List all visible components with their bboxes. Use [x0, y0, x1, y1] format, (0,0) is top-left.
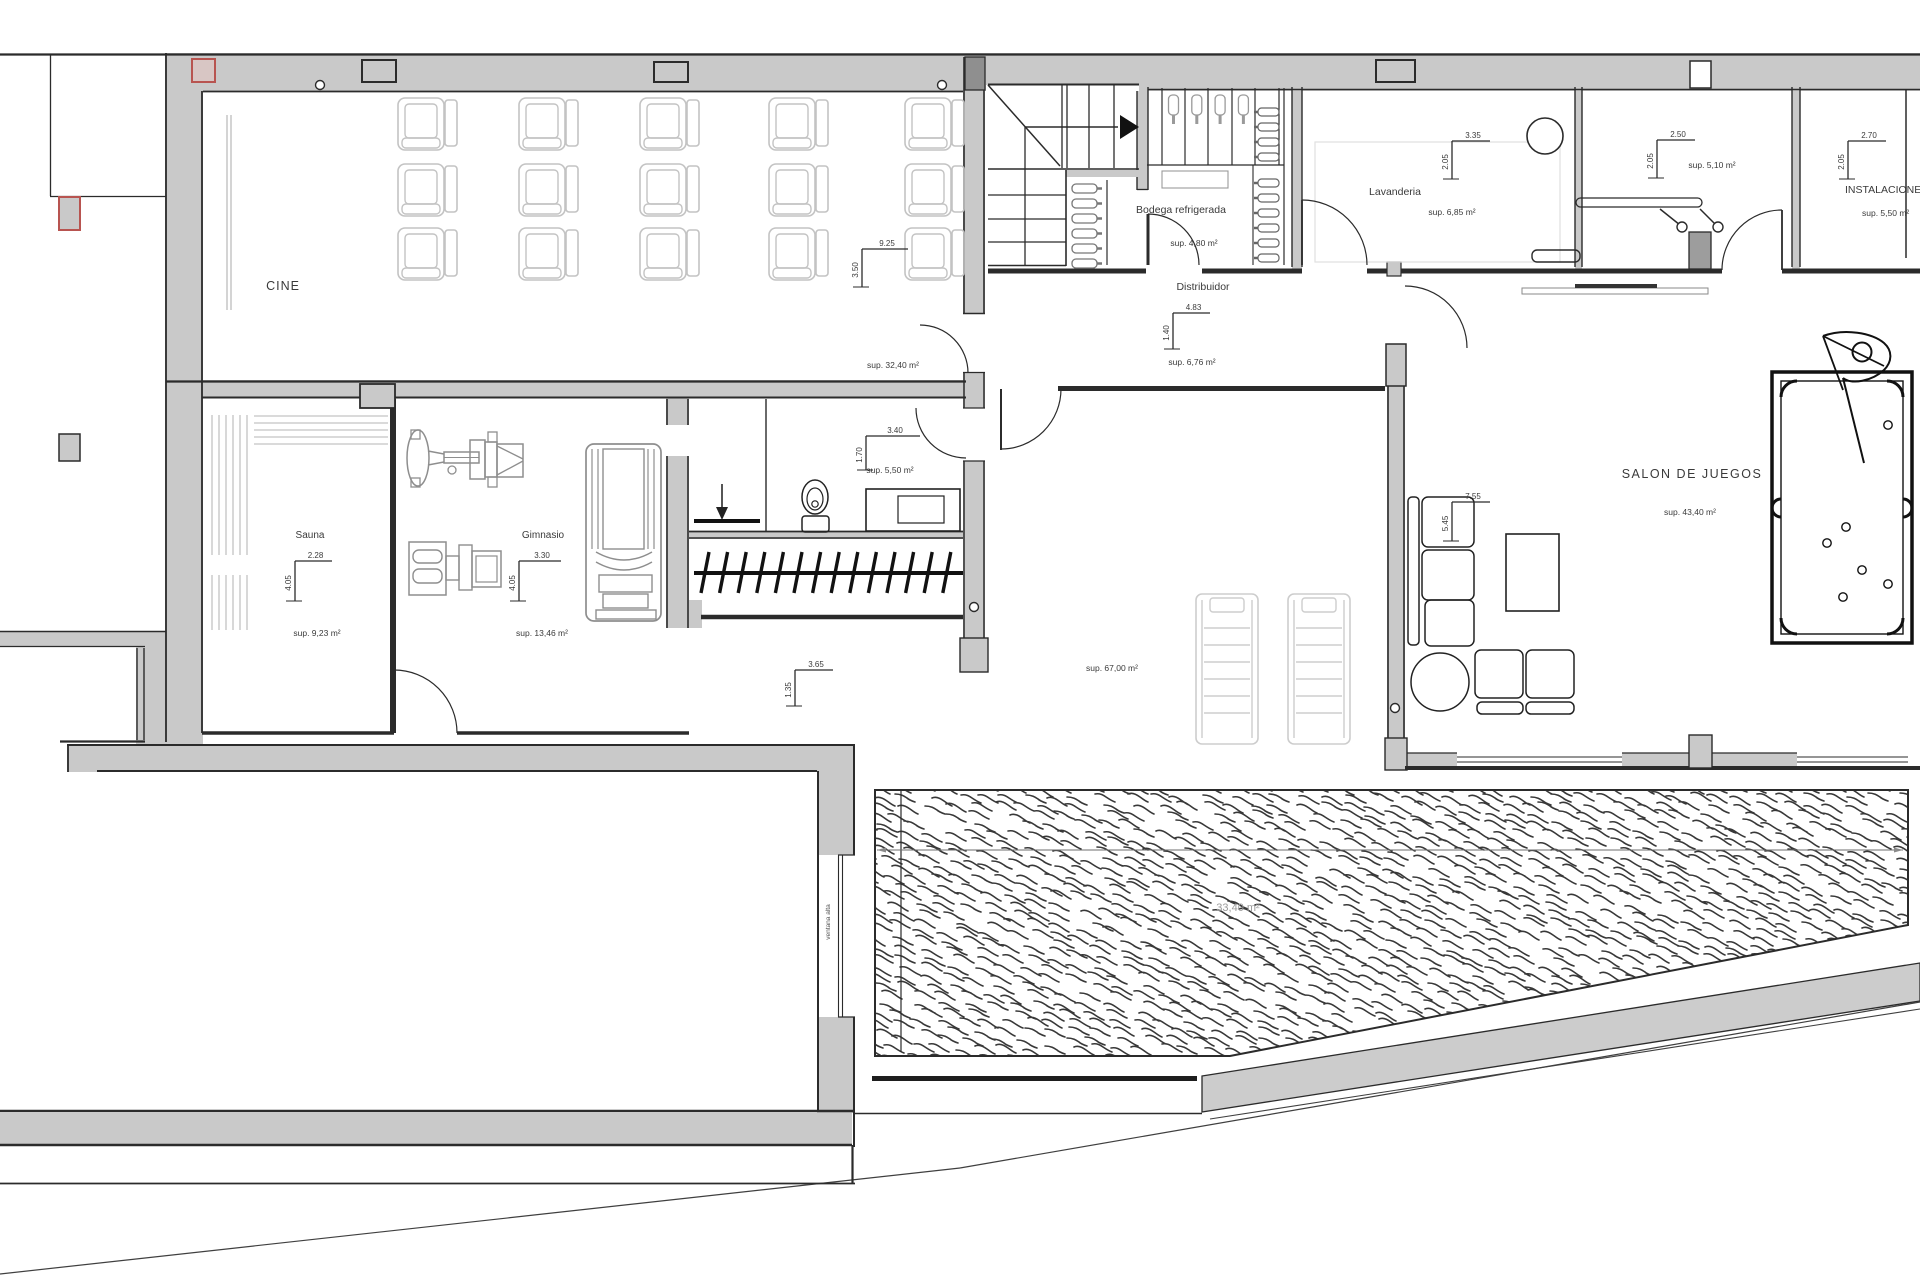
svg-text:1.70: 1.70 — [855, 447, 864, 463]
svg-text:sup. 5,10 m²: sup. 5,10 m² — [1688, 160, 1735, 170]
svg-text:Lavanderia: Lavanderia — [1369, 186, 1421, 198]
svg-text:sup. 6,76 m²: sup. 6,76 m² — [1168, 357, 1215, 367]
svg-text:3.65: 3.65 — [808, 660, 824, 669]
svg-text:5.45: 5.45 — [1441, 515, 1450, 531]
svg-text:sup. 13,46 m²: sup. 13,46 m² — [516, 628, 568, 638]
svg-text:Bodega refrigerada: Bodega refrigerada — [1136, 204, 1226, 216]
svg-text:1.35: 1.35 — [784, 682, 793, 698]
svg-text:9.25: 9.25 — [879, 239, 895, 248]
svg-text:4.05: 4.05 — [284, 575, 293, 591]
svg-text:sup. 4,80 m²: sup. 4,80 m² — [1170, 238, 1217, 248]
svg-text:sup. 5,50 m²: sup. 5,50 m² — [866, 465, 913, 475]
svg-text:2.70: 2.70 — [1861, 131, 1877, 140]
svg-text:4.05: 4.05 — [508, 575, 517, 591]
svg-text:2.05: 2.05 — [1646, 153, 1655, 169]
svg-text:Sauna: Sauna — [296, 530, 325, 541]
svg-text:3.30: 3.30 — [534, 551, 550, 560]
svg-text:33,40 m²: 33,40 m² — [1216, 902, 1260, 914]
svg-text:SALON DE JUEGOS: SALON DE JUEGOS — [1622, 467, 1763, 481]
svg-text:2.05: 2.05 — [1441, 154, 1450, 170]
svg-text:sup. 9,23 m²: sup. 9,23 m² — [293, 628, 340, 638]
svg-text:sup. 43,40 m²: sup. 43,40 m² — [1664, 507, 1716, 517]
svg-text:2.50: 2.50 — [1670, 130, 1686, 139]
svg-text:2.05: 2.05 — [1837, 154, 1846, 170]
svg-text:INSTALACIONES: INSTALACIONES — [1845, 184, 1920, 196]
svg-text:3.40: 3.40 — [887, 426, 903, 435]
svg-text:CINE: CINE — [266, 279, 300, 293]
svg-text:Distribuidor: Distribuidor — [1176, 281, 1230, 293]
svg-text:1.40: 1.40 — [1162, 325, 1171, 341]
svg-text:ventana alta: ventana alta — [825, 904, 832, 940]
svg-text:4.83: 4.83 — [1186, 303, 1202, 312]
svg-text:2.28: 2.28 — [308, 551, 324, 560]
svg-text:sup. 32,40 m²: sup. 32,40 m² — [867, 360, 919, 370]
svg-text:Gimnasio: Gimnasio — [522, 530, 565, 541]
svg-text:3.50: 3.50 — [851, 262, 860, 278]
svg-text:3.35: 3.35 — [1465, 131, 1481, 140]
svg-text:sup. 6,85 m²: sup. 6,85 m² — [1428, 207, 1475, 217]
svg-text:sup. 67,00 m²: sup. 67,00 m² — [1086, 663, 1138, 673]
svg-text:sup. 5,50 m²: sup. 5,50 m² — [1862, 208, 1909, 218]
svg-text:7.55: 7.55 — [1465, 492, 1481, 501]
